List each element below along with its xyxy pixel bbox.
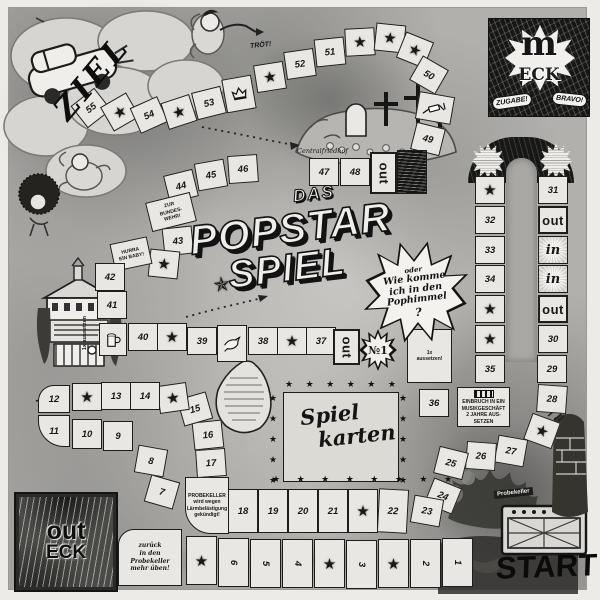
star-space: ★ bbox=[475, 325, 505, 353]
star-space: ★ bbox=[156, 382, 190, 414]
space-29: 29 bbox=[537, 355, 567, 383]
space-5: 5 bbox=[250, 539, 281, 588]
space-22: 22 bbox=[377, 488, 409, 534]
star-space: ★ bbox=[378, 539, 409, 588]
beer-mug-icon bbox=[99, 323, 127, 356]
space-13: 13 bbox=[101, 382, 131, 410]
space-10: 10 bbox=[72, 419, 102, 449]
star-space: ★ bbox=[186, 536, 217, 585]
space-2: 2 bbox=[410, 539, 441, 588]
star-space: ★ bbox=[523, 413, 561, 450]
aussetzen-vertical-label: 1x aussetzen bbox=[82, 316, 88, 350]
star-space: ★ bbox=[72, 383, 102, 411]
centralfriedhof-label: Centralfriedhof bbox=[297, 147, 348, 155]
star-space: ★ bbox=[277, 327, 307, 355]
space-12: 12 bbox=[38, 385, 70, 413]
space-17: 17 bbox=[195, 448, 227, 478]
space-36: 36 bbox=[419, 389, 449, 417]
space-25: 25 bbox=[433, 446, 469, 480]
space-51: 51 bbox=[314, 37, 347, 68]
out-space: out bbox=[370, 152, 397, 194]
space-19: 19 bbox=[258, 489, 288, 533]
space-37: 37 bbox=[306, 327, 336, 355]
space-33: 33 bbox=[475, 236, 505, 264]
space-31: 31 bbox=[538, 176, 568, 204]
space-40: 40 bbox=[128, 323, 158, 351]
space-8: 8 bbox=[134, 445, 168, 478]
space-39: 39 bbox=[187, 327, 217, 355]
space-4: 4 bbox=[282, 539, 313, 588]
space-41: 41 bbox=[97, 291, 127, 319]
space-45: 45 bbox=[194, 159, 228, 192]
space-6: 6 bbox=[218, 538, 249, 587]
space-30: 30 bbox=[538, 325, 568, 353]
star-space: ★ bbox=[157, 323, 187, 351]
star-space: ★ bbox=[475, 295, 505, 323]
syringe-icon bbox=[415, 91, 455, 125]
scribble-space bbox=[397, 150, 427, 194]
star-space: ★ bbox=[475, 176, 505, 204]
in-space: in bbox=[538, 265, 568, 293]
space-26: 26 bbox=[465, 441, 497, 471]
out-space: out bbox=[333, 329, 360, 365]
popstar-game-board-photo: ZIEL m ECK ZUGABE! BRAVO! out ECK START … bbox=[0, 0, 600, 600]
space-46: 46 bbox=[227, 154, 259, 184]
space-3: 3 bbox=[346, 540, 377, 589]
space-16: 16 bbox=[192, 420, 225, 451]
space-32: 32 bbox=[475, 206, 505, 234]
star-space: ★ bbox=[253, 61, 287, 93]
space-20: 20 bbox=[288, 489, 318, 533]
space-52: 52 bbox=[283, 48, 317, 80]
space-42: 42 bbox=[95, 263, 125, 291]
space-47: 47 bbox=[309, 158, 339, 186]
start-label: START bbox=[495, 547, 596, 587]
space-18: 18 bbox=[228, 489, 258, 533]
jail-space: EINBRUCH IN EINMUSIKGESCHÄFT2 JAHRE AUS-… bbox=[457, 387, 510, 427]
space-14: 14 bbox=[130, 382, 160, 410]
subtitle-starburst: oder Wie komme ich in den Pophimmel ? bbox=[354, 230, 479, 355]
space-38: 38 bbox=[248, 327, 278, 355]
space-28: 28 bbox=[536, 384, 568, 414]
space-9: 9 bbox=[103, 421, 133, 451]
out-space: out bbox=[538, 206, 568, 234]
star-space: ★ bbox=[314, 539, 345, 588]
space-23: 23 bbox=[410, 495, 444, 528]
space-48: 48 bbox=[340, 158, 370, 186]
space-34: 34 bbox=[475, 265, 505, 293]
space-53: 53 bbox=[191, 86, 227, 120]
space-35: 35 bbox=[475, 355, 505, 383]
space-1: 1 bbox=[442, 538, 473, 587]
space-21: 21 bbox=[318, 489, 348, 533]
in-space: in bbox=[538, 236, 568, 264]
space-27: 27 bbox=[494, 435, 528, 468]
star-space: ★ bbox=[344, 27, 375, 57]
space-11: 11 bbox=[38, 415, 70, 447]
subtitle-text: oder Wie komme ich in den Pophimmel ? bbox=[358, 234, 474, 350]
space-7: 7 bbox=[144, 474, 181, 509]
zurueck-space: zurückin denProbekellermehr üben! bbox=[118, 529, 182, 586]
crown-icon bbox=[221, 75, 256, 114]
probekeller-space: PROBEKELLERwird wegenLärmbelästigunggekü… bbox=[185, 477, 229, 534]
dove-icon bbox=[217, 325, 247, 362]
star-space: ★ bbox=[348, 489, 378, 533]
star-space: ★ bbox=[148, 249, 181, 280]
out-space: out bbox=[538, 295, 568, 323]
